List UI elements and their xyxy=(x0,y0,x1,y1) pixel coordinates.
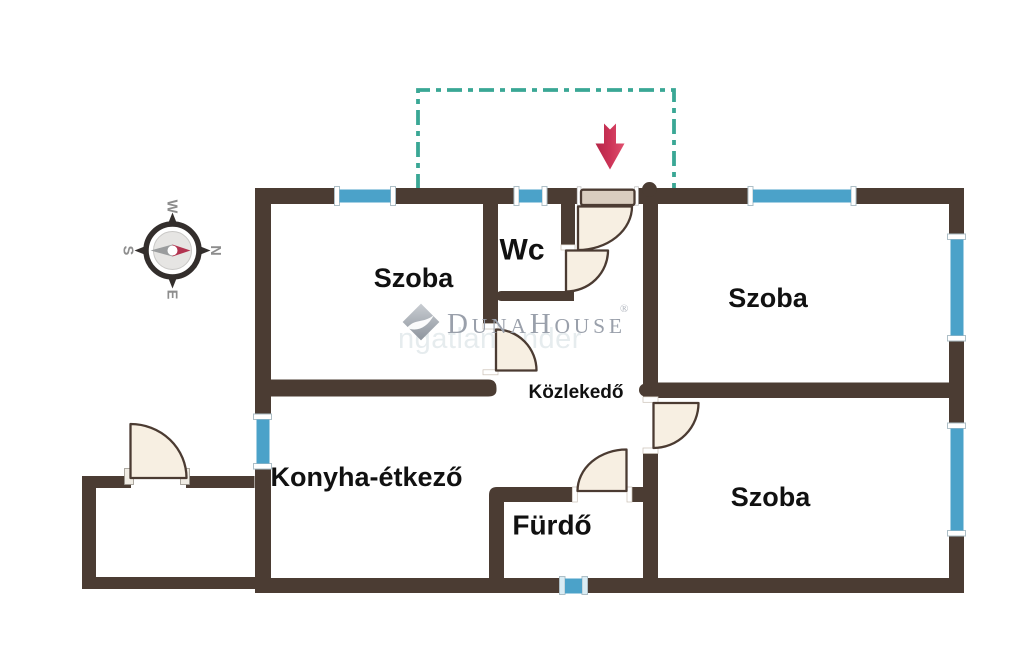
svg-text:Fürdő: Fürdő xyxy=(512,510,591,541)
svg-text:Szoba: Szoba xyxy=(731,482,811,512)
svg-text:Wc: Wc xyxy=(500,234,545,267)
svg-text:E: E xyxy=(164,290,180,300)
svg-text:®: ® xyxy=(620,303,628,315)
svg-text:Konyha-étkező: Konyha-étkező xyxy=(270,462,462,492)
svg-text:Szoba: Szoba xyxy=(728,283,808,313)
svg-text:N: N xyxy=(207,245,223,255)
svg-text:W: W xyxy=(164,200,180,214)
svg-text:Közlekedő: Közlekedő xyxy=(528,382,623,403)
svg-text:Szoba: Szoba xyxy=(374,263,454,293)
svg-text:S: S xyxy=(120,246,136,256)
